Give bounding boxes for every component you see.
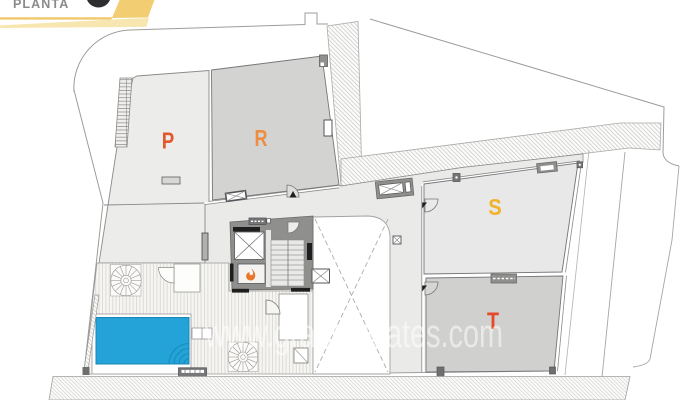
svg-text:R: R xyxy=(255,125,268,151)
svg-text:www.grandestates.com: www.grandestates.com xyxy=(204,312,503,356)
svg-text:P: P xyxy=(162,128,175,154)
svg-text:PLANTA: PLANTA xyxy=(13,0,69,11)
svg-text:S: S xyxy=(488,194,502,220)
